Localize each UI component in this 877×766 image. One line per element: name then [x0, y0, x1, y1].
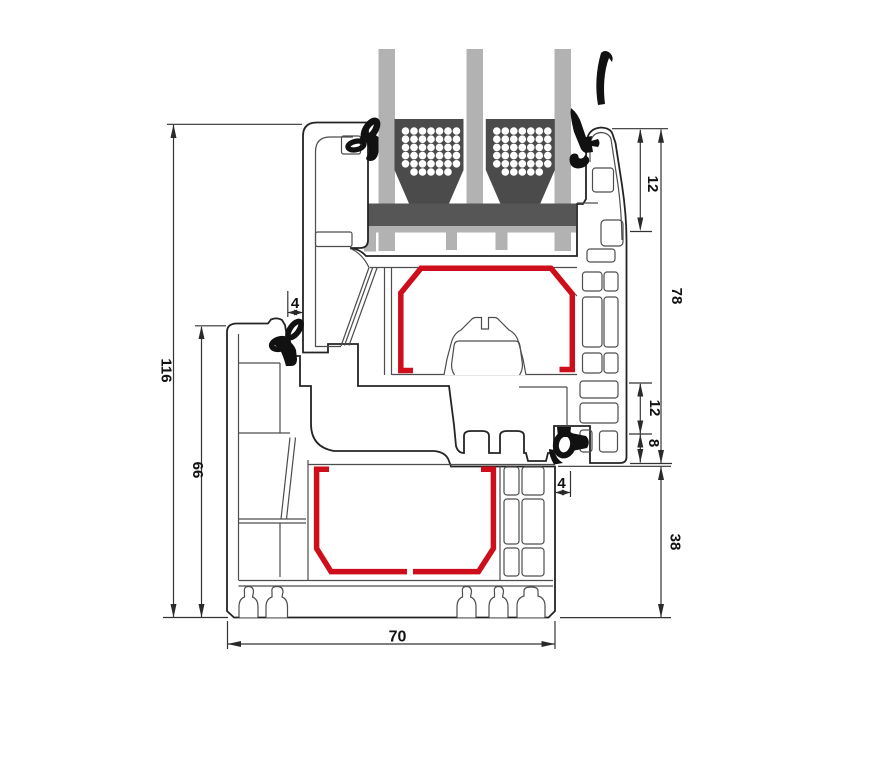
svg-text:66: 66 [189, 462, 206, 479]
svg-text:12: 12 [644, 176, 661, 193]
svg-text:4: 4 [557, 475, 566, 492]
svg-text:4: 4 [291, 295, 300, 312]
svg-text:78: 78 [668, 288, 685, 305]
svg-text:116: 116 [158, 358, 175, 382]
svg-text:70: 70 [389, 629, 407, 646]
svg-text:8: 8 [645, 439, 662, 447]
svg-text:12: 12 [646, 400, 663, 417]
svg-text:38: 38 [667, 534, 684, 551]
